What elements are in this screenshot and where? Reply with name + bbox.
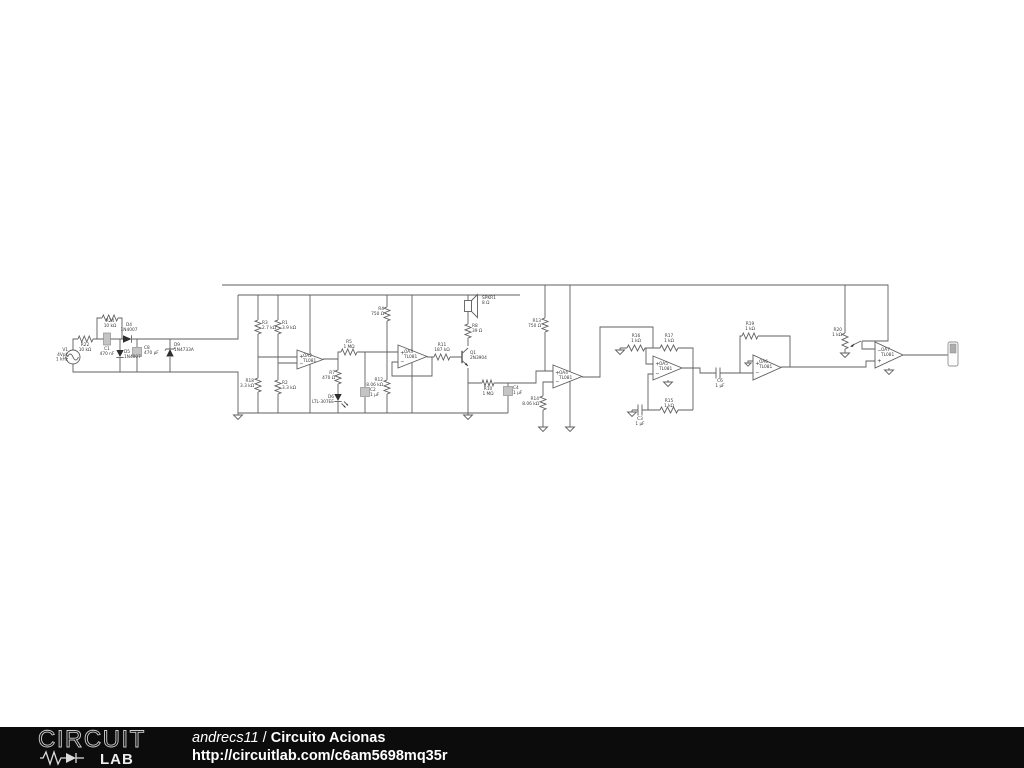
component-d4[interactable] [123, 335, 132, 342]
footer-separator: / [259, 730, 271, 746]
circuitlab-logo[interactable]: CIRCUIT LAB [38, 727, 168, 768]
component-r3[interactable] [255, 320, 261, 334]
label-r7-1: 470 Ω [322, 375, 336, 381]
component-r20-wiper[interactable] [850, 341, 861, 347]
svg-text:−: − [655, 371, 659, 377]
label-r20-1: 1 kΩ [832, 332, 843, 338]
label-r18-1: 3.3 kΩ [240, 383, 255, 389]
label-r19-1: 1 kΩ [745, 326, 756, 332]
label-c8-1: 470 µF [144, 350, 159, 356]
component-r2[interactable] [275, 380, 281, 394]
label-r10-1: 1 MΩ [482, 391, 494, 397]
component-r11[interactable] [434, 354, 450, 360]
component-gnd4 [566, 427, 575, 432]
label-r22-1: 10 kΩ [79, 347, 92, 353]
label-oa6-1: TL081 [758, 364, 772, 370]
label-r2-1: 3.3 kΩ [282, 385, 297, 391]
svg-text:−: − [755, 371, 759, 377]
label-r24-1: 10 kΩ [104, 323, 117, 329]
label-c1-1: 470 nF [100, 351, 115, 357]
component-gnd10 [885, 370, 894, 375]
component-c6[interactable] [716, 368, 720, 379]
label-r11-1: 187 kΩ [434, 347, 450, 353]
component-r19[interactable] [742, 333, 758, 339]
component-r8[interactable] [465, 324, 471, 338]
footer-byline-line: andrecs11 / Circuito Acionas [192, 729, 447, 747]
component-gnd3 [539, 427, 548, 432]
component-r5[interactable] [341, 349, 357, 355]
label-oa2-1: TL081 [302, 358, 316, 364]
logo-lab-text: LAB [100, 751, 134, 768]
component-r13[interactable] [542, 318, 548, 332]
component-d5[interactable] [116, 350, 123, 358]
label-d9-1: 1N4733A [174, 347, 194, 353]
footer-circuit-title: Circuito Acionas [271, 730, 386, 746]
component-out1[interactable] [948, 342, 958, 366]
component-gnd5 [616, 350, 625, 355]
svg-text:−: − [400, 359, 404, 365]
label-oa4-1: TL081 [558, 375, 572, 381]
label-r14-1: 8.06 kΩ [522, 401, 539, 407]
component-r20[interactable] [842, 333, 848, 349]
component-r17[interactable] [660, 345, 678, 351]
label-oa7-1: TL081 [880, 352, 894, 358]
component-r16[interactable] [627, 345, 645, 351]
component-r18[interactable] [255, 378, 261, 392]
logo-circuit-text: CIRCUIT [38, 727, 146, 753]
label-spkr1-1: 8 Ω [482, 300, 490, 306]
label-r8-1: 39 Ω [472, 328, 483, 334]
label-r1-1: 3.9 kΩ [282, 325, 297, 331]
component-gnd7 [664, 382, 673, 387]
label-c3-1: 1 µF [635, 421, 645, 427]
label-r12-1: 8.06 kΩ [366, 382, 383, 388]
label-r5-1: 1 MΩ [343, 344, 355, 350]
circuit-schematic[interactable]: +−+−+−+−+−−+ V14Vpk1 kHzR2210 kΩR2410 kΩ… [0, 0, 1024, 727]
component-r12[interactable] [384, 380, 390, 394]
label-c2-1: 1 µF [370, 392, 380, 398]
logo-resistor-diode-icon [40, 752, 84, 764]
label-c4-1: 1 µF [513, 390, 523, 396]
label-oa5-1: TL081 [658, 366, 672, 372]
footer-bar: CIRCUIT LAB andrecs11 / Circuito Acionas… [0, 727, 1024, 768]
component-q1[interactable] [462, 348, 468, 366]
label-r15-1: 1 kΩ [664, 403, 675, 409]
label-r17-1: 1 kΩ [664, 338, 675, 344]
label-v1-2: 1 kHz [56, 357, 69, 363]
component-spkr1[interactable] [465, 295, 478, 318]
label-r16-1: 1 kΩ [631, 338, 642, 344]
component-c1[interactable] [104, 333, 111, 345]
component-r22[interactable] [78, 336, 93, 342]
footer-byline: andrecs11 / Circuito Acionas http://circ… [192, 729, 447, 765]
label-oa3-1: TL081 [403, 354, 417, 360]
component-gnd9 [841, 353, 850, 358]
label-r4-1: 750 Ω [371, 311, 385, 317]
label-q1-1: 2N3904 [470, 355, 487, 361]
component-gnd8 [745, 363, 751, 366]
component-c3[interactable] [638, 405, 642, 416]
component-r14[interactable] [540, 396, 546, 410]
footer-url[interactable]: http://circuitlab.com/c6am5698mq35r [192, 747, 447, 765]
component-c2[interactable] [361, 388, 370, 397]
label-r13-1: 750 Ω [528, 323, 542, 329]
wires [73, 285, 948, 427]
component-r7[interactable] [335, 370, 341, 384]
component-r4[interactable] [384, 307, 390, 321]
label-r3-1: 2.7 kΩ [262, 325, 277, 331]
component-gnd6 [628, 412, 637, 417]
component-r10[interactable] [482, 380, 494, 386]
label-d4-1: 1N4007 [121, 327, 138, 333]
label-c6-1: 1 µF [715, 383, 725, 389]
svg-text:+: + [877, 358, 881, 364]
footer-username[interactable]: andrecs11 [192, 730, 259, 746]
component-gnd2 [464, 415, 473, 420]
component-c4[interactable] [504, 387, 513, 396]
component-d6[interactable] [334, 394, 348, 408]
component-gnd1 [234, 415, 243, 420]
label-d5-1: 1N4007 [124, 354, 141, 360]
schematic-canvas[interactable]: +−+−+−+−+−−+ V14Vpk1 kHzR2210 kΩR2410 kΩ… [0, 0, 1024, 727]
label-d6-1: LTL-307EE [312, 399, 334, 405]
